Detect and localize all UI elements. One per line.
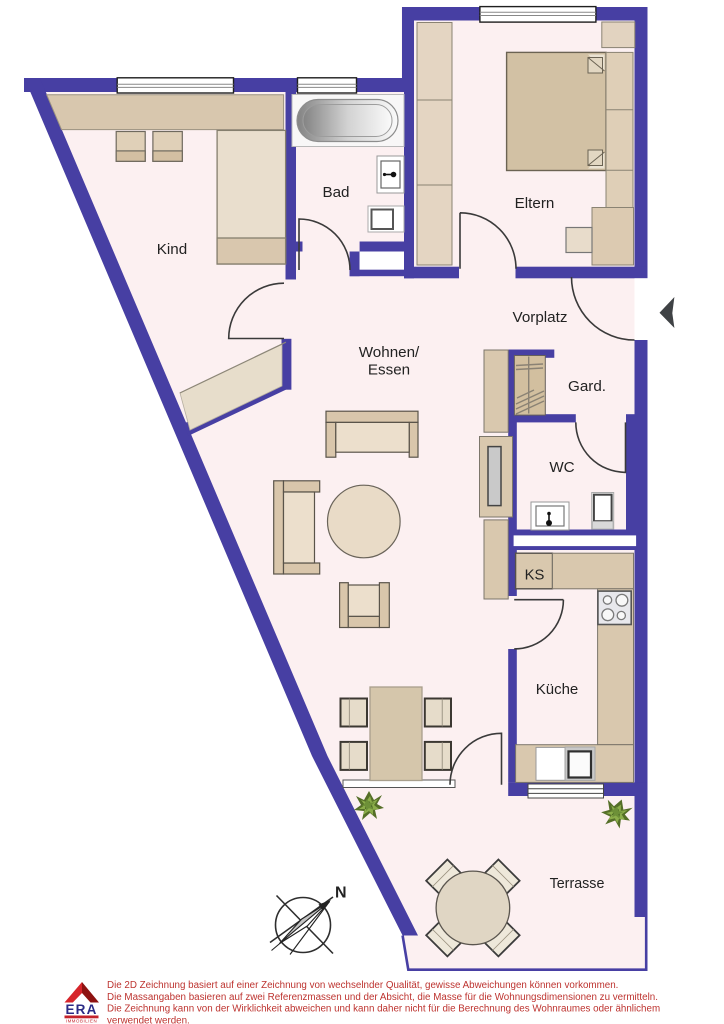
svg-text:IMMOBILIEN: IMMOBILIEN: [66, 1019, 97, 1024]
svg-text:Bad: Bad: [322, 184, 349, 201]
svg-text:Wohnen/: Wohnen/: [359, 344, 420, 361]
svg-text:Kind: Kind: [157, 241, 187, 258]
svg-text:Eltern: Eltern: [515, 195, 555, 212]
svg-text:Vorplatz: Vorplatz: [513, 309, 568, 326]
svg-text:WC: WC: [549, 459, 574, 476]
svg-text:N: N: [335, 885, 347, 902]
svg-text:Essen: Essen: [368, 362, 410, 379]
svg-text:verwendet werden.: verwendet werden.: [107, 1015, 190, 1024]
svg-text:Die 2D Zeichnung basiert auf e: Die 2D Zeichnung basiert auf einer Zeich…: [107, 980, 618, 991]
svg-text:Die Massangaben basieren auf z: Die Massangaben basieren auf zwei Refere…: [107, 992, 658, 1003]
svg-text:Küche: Küche: [536, 681, 579, 698]
svg-text:Gard.: Gard.: [568, 378, 606, 395]
svg-text:ERA: ERA: [65, 1002, 97, 1017]
svg-text:Terrasse: Terrasse: [550, 876, 605, 892]
svg-text:Die Zeichnung kann von der Wir: Die Zeichnung kann von der Wirklichkeit …: [107, 1004, 660, 1015]
svg-text:KS: KS: [525, 568, 545, 584]
